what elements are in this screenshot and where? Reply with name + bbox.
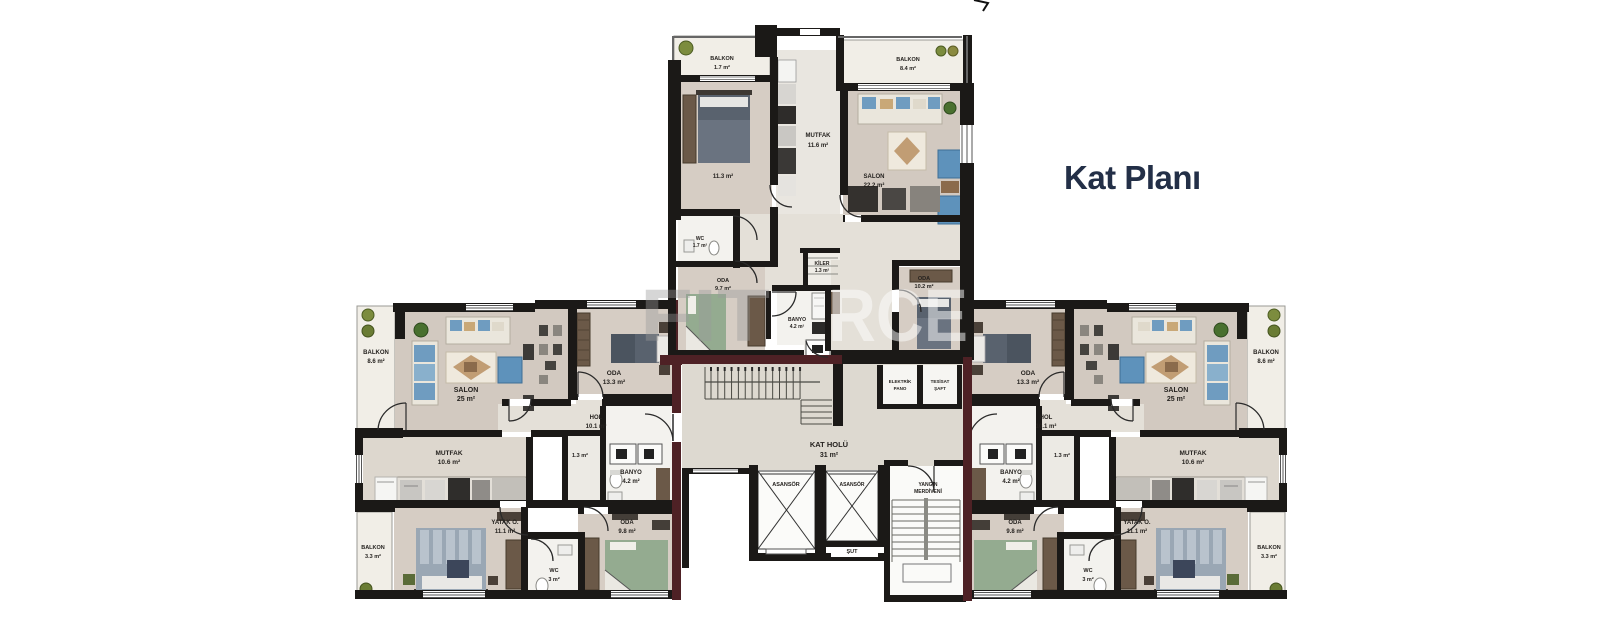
- svg-text:BALKON: BALKON: [1253, 350, 1279, 356]
- svg-text:ASANSÖR: ASANSÖR: [839, 481, 864, 488]
- svg-text:1.3 m²: 1.3 m²: [1054, 452, 1070, 459]
- svg-text:PANO: PANO: [894, 386, 907, 391]
- svg-text:8.6 m²: 8.6 m²: [1257, 358, 1274, 365]
- svg-text:4.2 m²: 4.2 m²: [1002, 478, 1019, 485]
- svg-text:HOL: HOL: [1040, 415, 1053, 421]
- svg-text:FIT: FIT: [640, 274, 770, 357]
- svg-text:ODA: ODA: [1021, 370, 1036, 377]
- svg-text:BANYO: BANYO: [1000, 470, 1022, 476]
- svg-text:3.3 m²: 3.3 m²: [365, 553, 381, 560]
- svg-text:BALKON: BALKON: [1257, 545, 1281, 551]
- svg-text:ODA: ODA: [620, 520, 634, 526]
- svg-text:13.3 m²: 13.3 m²: [1017, 379, 1040, 386]
- svg-text:10.6 m²: 10.6 m²: [1182, 459, 1205, 466]
- svg-text:11.6 m²: 11.6 m²: [808, 142, 828, 149]
- svg-text:MUTFAK: MUTFAK: [435, 450, 462, 457]
- svg-text:BALKON: BALKON: [710, 56, 734, 62]
- svg-text:11.1 m²: 11.1 m²: [1127, 528, 1147, 535]
- svg-text:ŞUT: ŞUT: [847, 549, 859, 555]
- svg-text:MUTFAK: MUTFAK: [1179, 450, 1206, 457]
- svg-text:YATAK O.: YATAK O.: [1123, 520, 1151, 526]
- svg-text:ŞAFT: ŞAFT: [934, 386, 946, 391]
- svg-text:TESİSAT: TESİSAT: [931, 378, 950, 384]
- svg-text:BALKON: BALKON: [363, 350, 389, 356]
- svg-text:ELEKTRİK: ELEKTRİK: [889, 378, 912, 384]
- svg-text:ODA: ODA: [1008, 520, 1022, 526]
- svg-text:ODA: ODA: [607, 370, 622, 377]
- svg-text:MERDİVENİ: MERDİVENİ: [914, 488, 942, 495]
- svg-text:11.3 m²: 11.3 m²: [713, 173, 733, 180]
- svg-text:SALON: SALON: [1164, 387, 1189, 394]
- svg-text:BALKON: BALKON: [361, 545, 385, 551]
- svg-text:3 m²: 3 m²: [548, 576, 559, 583]
- svg-text:8.6 m²: 8.6 m²: [367, 358, 384, 365]
- svg-text:RCE: RCE: [828, 274, 968, 357]
- svg-text:13.3 m²: 13.3 m²: [603, 379, 626, 386]
- svg-text:8.4 m²: 8.4 m²: [900, 65, 916, 72]
- svg-text:1.7 m²: 1.7 m²: [693, 243, 708, 249]
- svg-text:10.1 m²: 10.1 m²: [1036, 423, 1057, 430]
- svg-text:SALON: SALON: [864, 174, 885, 180]
- svg-text:ASANSÖR: ASANSÖR: [772, 481, 800, 488]
- svg-text:10.6 m²: 10.6 m²: [438, 459, 461, 466]
- svg-text:9.8 m²: 9.8 m²: [618, 528, 635, 535]
- svg-text:4.2 m²: 4.2 m²: [622, 478, 639, 485]
- svg-text:YANGIN: YANGIN: [919, 482, 938, 488]
- svg-text:11.1 m²: 11.1 m²: [495, 528, 515, 535]
- svg-text:10.1 m²: 10.1 m²: [586, 423, 607, 430]
- svg-text:KİLER: KİLER: [815, 260, 830, 267]
- svg-text:WC: WC: [1083, 568, 1092, 574]
- svg-text:HOL: HOL: [590, 415, 603, 421]
- svg-text:BANYO: BANYO: [620, 470, 642, 476]
- svg-text:BALKON: BALKON: [896, 57, 920, 63]
- svg-text:MUTFAK: MUTFAK: [806, 133, 832, 139]
- svg-text:1.7 m²: 1.7 m²: [714, 64, 730, 71]
- svg-text:3.3 m²: 3.3 m²: [1261, 553, 1277, 560]
- svg-text:22.2 m²: 22.2 m²: [864, 182, 885, 189]
- svg-text:3 m²: 3 m²: [1082, 576, 1093, 583]
- svg-text:SALON: SALON: [454, 387, 479, 394]
- svg-text:4.2 m²: 4.2 m²: [790, 324, 805, 330]
- svg-text:YATAK O.: YATAK O.: [491, 520, 519, 526]
- svg-text:KAT HOLÜ: KAT HOLÜ: [810, 440, 848, 449]
- svg-text:WC: WC: [696, 236, 705, 242]
- svg-text:1.3 m²: 1.3 m²: [572, 452, 588, 459]
- svg-text:25 m²: 25 m²: [457, 396, 476, 403]
- svg-text:WC: WC: [549, 568, 558, 574]
- svg-text:31 m²: 31 m²: [820, 452, 839, 459]
- svg-text:25 m²: 25 m²: [1167, 396, 1186, 403]
- svg-text:9.8 m²: 9.8 m²: [1006, 528, 1023, 535]
- svg-text:Kat Planı: Kat Planı: [1064, 159, 1201, 196]
- svg-text:BANYO: BANYO: [788, 317, 806, 323]
